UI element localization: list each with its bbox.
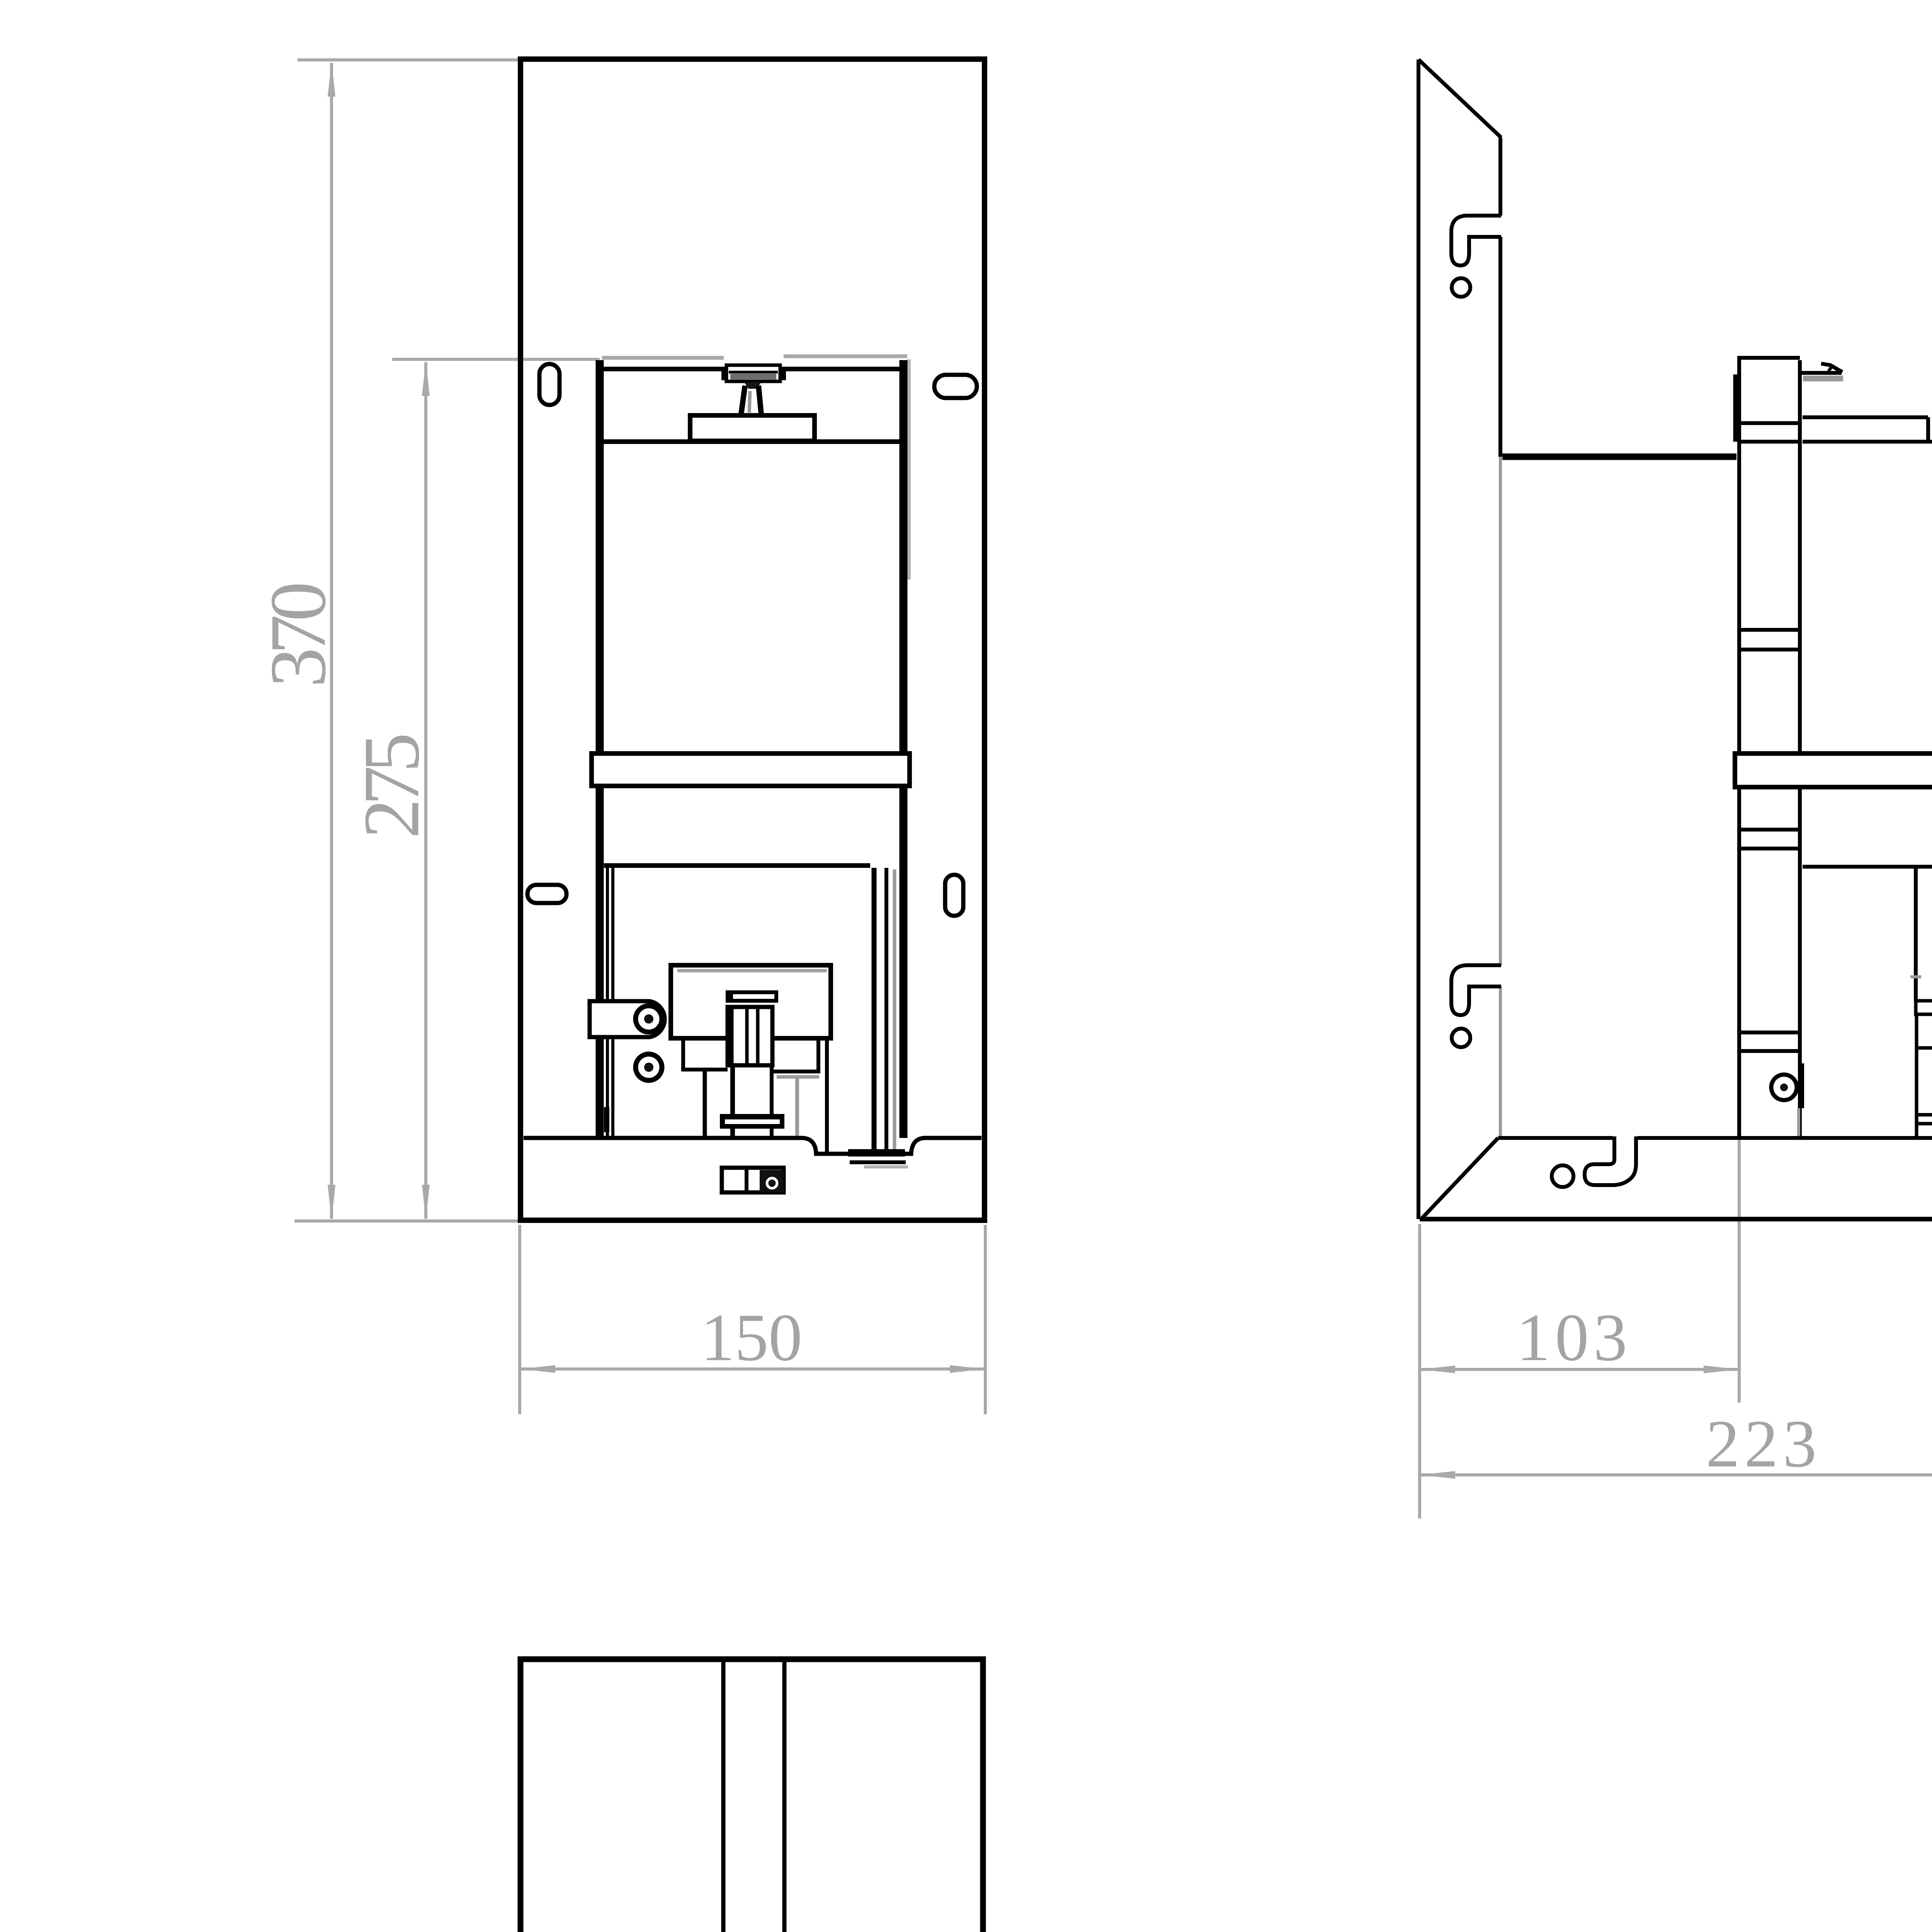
svg-text:103: 103 (1517, 1300, 1632, 1375)
svg-text:223: 223 (1706, 1406, 1821, 1481)
svg-text:275: 275 (347, 735, 436, 838)
svg-text:370: 370 (254, 584, 342, 687)
svg-text:150: 150 (701, 1300, 803, 1375)
